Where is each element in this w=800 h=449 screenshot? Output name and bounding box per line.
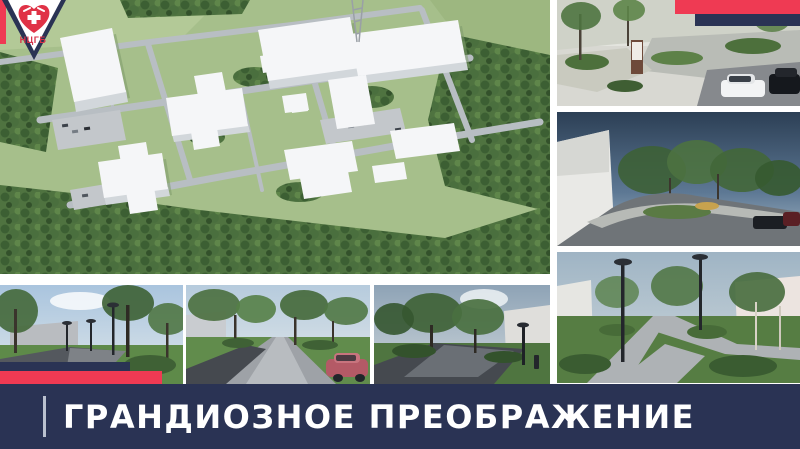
presentation-slide: НЦГБ ГРАНДИОЗНОЕ ПРЕОБРАЖЕНИЕ [0, 0, 800, 449]
top-right-red-bar [675, 0, 800, 14]
aerial-campus-render [0, 0, 550, 274]
slide-title: ГРАНДИОЗНОЕ ПРЕОБРАЖЕНИЕ [63, 398, 695, 436]
bottom-left-red-bar [0, 371, 162, 384]
org-logo: НЦГБ [0, 0, 72, 66]
path-junction-render [557, 252, 800, 383]
title-accent-line [43, 396, 46, 437]
logo-red-stripe [0, 0, 6, 44]
top-right-navy-bar [695, 14, 800, 26]
parking-lot-render [557, 112, 800, 246]
org-abbr: НЦГБ [10, 35, 56, 45]
title-banner: ГРАНДИОЗНОЕ ПРЕОБРАЖЕНИЕ [0, 384, 800, 449]
alley-render [186, 285, 370, 384]
sign-pillar [631, 40, 643, 74]
courtyard-path-render [374, 285, 550, 384]
